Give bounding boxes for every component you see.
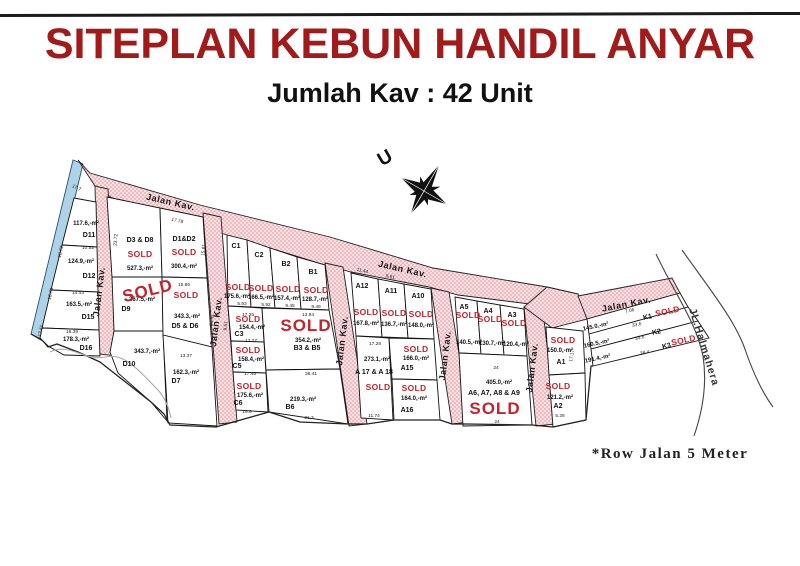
plot-shape-c3 — [228, 306, 264, 342]
plot-id-c1: C1 — [232, 243, 241, 250]
dim-label: 13.94 — [302, 312, 314, 318]
plot-area-a2: 121.2,-m² — [547, 394, 573, 401]
plot-area-c5: 158.4,-m² — [238, 356, 264, 363]
plot-area-d7: 162.3,-m² — [173, 369, 199, 376]
plot-area-c1: 175.6,-m² — [224, 293, 250, 300]
compass-north-label: U — [374, 146, 396, 171]
plot-shape-a17-a18 — [356, 336, 393, 420]
dim-label: 23.72 — [112, 233, 119, 246]
plot-area-c2: 166.5,-m² — [248, 294, 274, 301]
dim-label: 17.46 — [244, 371, 256, 377]
row-jalan-note: *Row Jalan 5 Meter — [555, 446, 785, 463]
dim-label: 17.28 — [369, 341, 381, 347]
sold-label-a6-a7-a8-a9: SOLD — [469, 399, 520, 418]
dim-label: 5.93 — [237, 301, 247, 307]
plot-area-a1: 150.0,-m² — [547, 347, 573, 354]
sold-label-c1: SOLD — [226, 282, 251, 292]
plot-id-d1-d2: D1&D2 — [173, 236, 196, 243]
plot-id-d3-d8: D3 & D8 — [127, 237, 154, 244]
plot-id-d16: D16 — [80, 345, 93, 352]
dim-label: 15.86 — [178, 282, 190, 288]
siteplan-map: 117.6,-m²D11124.9,-m²D12163.5,-m²D15178.… — [0, 0, 800, 566]
plot-id-c5: C5 — [233, 363, 242, 370]
plot-area-a4: 130.7,-m² — [479, 340, 505, 347]
plot-id-k3: K3 — [662, 342, 672, 351]
sold-label-a3: SOLD — [502, 318, 527, 328]
sold-label-a12: SOLD — [354, 307, 379, 317]
plot-area-d3-d8: 527.3,-m² — [127, 265, 153, 272]
plot-area-d11: 117.6,-m² — [73, 220, 99, 227]
plot-id-a12: A12 — [356, 283, 369, 290]
plot-area-d5-d6: 343.3,-m² — [174, 313, 200, 320]
street-label-jl-halmahera: JL.Halmahera — [686, 307, 721, 388]
dim-label: 36.41 — [305, 371, 317, 377]
sold-label-a-17-a-18: SOLD — [366, 382, 391, 392]
plot-id-b6: B6 — [286, 404, 295, 411]
sold-label-b2: SOLD — [276, 284, 301, 294]
dim-label: 9.49 — [311, 304, 321, 310]
dim-label: 24 — [493, 365, 499, 371]
plot-area-a15: 166.0,-m² — [403, 355, 429, 362]
dim-label: 15.81 — [200, 243, 207, 256]
sold-label-b3-b5: SOLD — [280, 316, 331, 335]
plot-id-a11: A11 — [385, 288, 398, 295]
dim-label: 11.74 — [368, 413, 380, 419]
plot-id-d7: D7 — [172, 378, 181, 385]
plot-area-d10: 343.7,-m² — [134, 348, 160, 355]
plot-area-b1: 128.7,-m² — [302, 296, 328, 303]
dim-label: 14.43 — [72, 290, 84, 296]
sold-label-b1: SOLD — [304, 285, 329, 295]
plot-area-b3-b5: 354.2,-m² — [295, 337, 321, 344]
sold-label-a10: SOLD — [409, 309, 434, 319]
dim-label: 16.39 — [66, 329, 78, 335]
plot-id-a10: A10 — [412, 293, 425, 300]
plot-id-c3: C3 — [235, 331, 244, 338]
dim-label: 5.92 — [261, 302, 271, 308]
sold-label-d1-d2: SOLD — [172, 247, 197, 257]
compass-star-highlight — [388, 152, 461, 226]
sold-label-a4: SOLD — [478, 314, 503, 324]
plot-id-d12: D12 — [83, 273, 96, 280]
plot-area-d12: 124.9,-m² — [68, 258, 94, 265]
plot-id-a1: A1 — [557, 359, 566, 366]
plot-area-a10: 148.0,-m² — [408, 322, 434, 329]
plot-area-c3: 154.4,-m² — [239, 324, 265, 331]
siteplan-page: SITEPLAN KEBUN HANDIL ANYAR Jumlah Kav :… — [0, 0, 800, 566]
dim-label: 10.52 — [82, 245, 94, 251]
sold-label-d3-d8: SOLD — [128, 249, 153, 259]
dim-label: 21.3 — [304, 415, 314, 421]
plot-area-a-17-a-18: 273.1,-m² — [364, 356, 390, 363]
plot-area-a16: 164.0,-m² — [401, 395, 427, 402]
plot-id-b1: B1 — [309, 269, 318, 276]
plot-area-c6: 175.6,-m² — [237, 392, 263, 399]
plot-area-d1-d2: 300.4,-m² — [171, 263, 197, 270]
plot-area-a11: 136.7,-m² — [381, 321, 407, 328]
sold-label-c2: SOLD — [249, 283, 274, 293]
sold-label-a2: SOLD — [546, 381, 571, 391]
dim-label: 13.37 — [180, 353, 192, 359]
sold-label-c6: SOLD — [237, 381, 262, 391]
dim-label: 17.27 — [245, 338, 257, 344]
compass-rose — [388, 152, 461, 226]
plot-area-d16: 178.3,-m² — [63, 336, 89, 343]
dim-label: 17.25 — [242, 312, 254, 318]
sold-label-a15: SOLD — [404, 344, 429, 354]
plot-id-c2: C2 — [255, 252, 264, 259]
plot-area-a3: 120.4,-m² — [503, 341, 529, 348]
sold-label-a16: SOLD — [402, 383, 427, 393]
plot-area-d15: 163.5,-m² — [66, 301, 92, 308]
plot-id-d9: D9 — [122, 306, 131, 313]
compass-star-diagonal — [406, 172, 445, 209]
plot-area-b6: 219.3,-m² — [290, 396, 316, 403]
plot-id-a-17-a-18: A 17 & A 18 — [355, 369, 393, 376]
plot-id-a6-a7-a8-a9: A6, A7, A8 & A9 — [468, 390, 520, 397]
dim-label: 24 — [494, 419, 500, 425]
plot-id-a15: A15 — [401, 365, 414, 372]
plot-id-b2: B2 — [282, 261, 291, 268]
dim-label: 16.6 — [242, 409, 252, 415]
plot-id-b3-b5: B3 & B5 — [294, 345, 321, 352]
dim-label: 5.28 — [555, 413, 565, 419]
plot-id-a16: A16 — [401, 407, 414, 414]
dim-label: 9.45 — [285, 303, 295, 309]
sold-label-a11: SOLD — [382, 308, 407, 318]
sold-label-c5: SOLD — [236, 345, 261, 355]
plot-id-a2: A2 — [554, 403, 563, 410]
sold-label-d5-d6: SOLD — [174, 290, 199, 300]
plot-area-b2: 157.4,-m² — [274, 295, 300, 302]
plot-id-d11: D11 — [83, 232, 96, 239]
sold-label-a1: SOLD — [551, 335, 576, 345]
plot-id-d5-d6: D5 & D6 — [172, 323, 199, 330]
plot-area-a6-a7-a8-a9: 405.0,-m² — [486, 379, 512, 386]
plot-id-c6: C6 — [234, 400, 243, 407]
plot-id-d10: D10 — [123, 361, 136, 368]
dim-label: 9.51 — [223, 321, 230, 331]
plot-area-a12: 167.8,-m² — [353, 320, 379, 327]
